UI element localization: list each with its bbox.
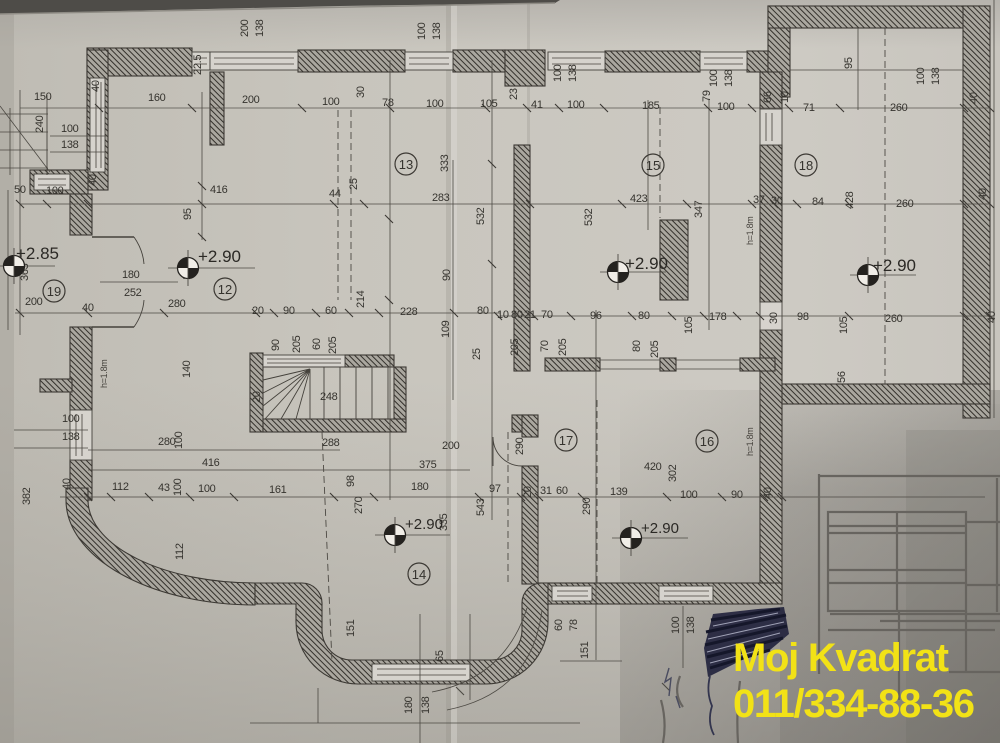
svg-text:100: 100 [172, 478, 184, 496]
svg-text:280: 280 [168, 298, 186, 310]
svg-text:98: 98 [345, 475, 357, 487]
svg-text:90: 90 [283, 305, 295, 317]
svg-text:100: 100 [552, 64, 564, 82]
svg-text:151: 151 [579, 641, 591, 659]
svg-text:+2.85: +2.85 [16, 244, 59, 263]
svg-text:283: 283 [432, 192, 450, 204]
svg-text:180: 180 [403, 696, 415, 714]
svg-text:10: 10 [497, 309, 509, 321]
svg-text:248: 248 [320, 391, 338, 403]
svg-text:h=1.8m: h=1.8m [745, 217, 755, 245]
svg-text:+2.90: +2.90 [405, 516, 443, 533]
svg-text:185: 185 [642, 100, 660, 112]
svg-text:100: 100 [416, 22, 428, 40]
svg-text:21: 21 [524, 309, 536, 321]
svg-text:100: 100 [426, 98, 444, 110]
svg-text:40: 40 [87, 174, 99, 186]
svg-text:40: 40 [82, 302, 94, 314]
svg-text:270: 270 [353, 496, 365, 514]
svg-text:160: 160 [148, 92, 166, 104]
svg-text:205: 205 [649, 340, 661, 358]
svg-text:100: 100 [198, 483, 216, 495]
svg-text:16: 16 [700, 434, 714, 449]
svg-text:109: 109 [440, 320, 452, 338]
svg-text:60: 60 [311, 338, 323, 350]
svg-text:60: 60 [553, 619, 565, 631]
svg-text:011/334-88-36: 011/334-88-36 [733, 682, 975, 726]
svg-text:260: 260 [885, 313, 903, 325]
svg-text:90: 90 [441, 269, 453, 281]
svg-text:Moj Kvadrat: Moj Kvadrat [733, 636, 949, 680]
svg-text:138: 138 [930, 67, 942, 85]
svg-text:138: 138 [685, 616, 697, 634]
svg-text:66: 66 [762, 91, 774, 103]
svg-text:205: 205 [509, 338, 521, 356]
svg-text:40: 40 [90, 80, 102, 92]
svg-text:37: 37 [753, 194, 765, 206]
svg-text:60: 60 [556, 485, 568, 497]
svg-text:100: 100 [915, 67, 927, 85]
svg-text:290: 290 [581, 497, 593, 515]
svg-text:200: 200 [25, 296, 43, 308]
svg-text:96: 96 [590, 310, 602, 322]
svg-text:h=1.8m: h=1.8m [99, 360, 109, 388]
svg-text:100: 100 [717, 101, 735, 113]
svg-text:205: 205 [557, 338, 569, 356]
svg-text:138: 138 [420, 696, 432, 714]
svg-text:90: 90 [731, 489, 743, 501]
svg-text:17: 17 [559, 433, 573, 448]
svg-text:200: 200 [242, 94, 260, 106]
svg-text:+2.90: +2.90 [873, 256, 916, 275]
svg-text:420: 420 [644, 461, 662, 473]
svg-text:+2.90: +2.90 [641, 520, 679, 537]
svg-text:100: 100 [61, 123, 79, 135]
svg-text:14: 14 [412, 567, 426, 582]
svg-text:416: 416 [202, 457, 220, 469]
svg-text:214: 214 [355, 290, 367, 308]
svg-text:71: 71 [803, 102, 815, 114]
svg-text:41: 41 [531, 99, 543, 111]
svg-text:60: 60 [325, 305, 337, 317]
svg-text:428: 428 [844, 191, 856, 209]
svg-text:252: 252 [124, 287, 142, 299]
svg-text:78: 78 [568, 619, 580, 631]
svg-text:138: 138 [62, 431, 80, 443]
svg-text:90: 90 [270, 339, 282, 351]
svg-text:288: 288 [322, 437, 340, 449]
svg-text:95: 95 [182, 208, 194, 220]
svg-text:205: 205 [291, 335, 303, 353]
svg-text:80: 80 [477, 305, 489, 317]
svg-text:65: 65 [434, 650, 446, 662]
svg-text:100: 100 [567, 99, 585, 111]
svg-text:100: 100 [680, 489, 698, 501]
svg-text:95: 95 [843, 57, 855, 69]
svg-text:180: 180 [411, 481, 429, 493]
svg-text:200: 200 [239, 19, 251, 37]
svg-text:44: 44 [329, 188, 341, 200]
svg-text:240: 240 [34, 115, 46, 133]
svg-text:260: 260 [890, 102, 908, 114]
svg-text:20: 20 [252, 305, 264, 317]
svg-text:100: 100 [173, 431, 185, 449]
svg-text:180: 180 [122, 269, 140, 281]
svg-text:30: 30 [355, 86, 367, 98]
svg-text:10: 10 [779, 91, 791, 103]
svg-text:302: 302 [667, 464, 679, 482]
svg-text:84: 84 [812, 196, 824, 208]
svg-text:h=1.8m: h=1.8m [745, 428, 755, 456]
svg-text:100: 100 [322, 96, 340, 108]
svg-text:138: 138 [723, 69, 735, 87]
svg-text:151: 151 [345, 619, 357, 637]
svg-text:23: 23 [508, 88, 520, 100]
svg-text:416: 416 [210, 184, 228, 196]
svg-text:80: 80 [511, 309, 523, 321]
svg-text:532: 532 [583, 208, 595, 226]
svg-text:100: 100 [46, 185, 64, 197]
svg-text:260: 260 [896, 198, 914, 210]
svg-text:532: 532 [475, 207, 487, 225]
svg-text:19: 19 [47, 284, 61, 299]
svg-text:139: 139 [610, 486, 628, 498]
svg-text:138: 138 [567, 64, 579, 82]
svg-text:25: 25 [348, 178, 360, 190]
svg-text:100: 100 [670, 616, 682, 634]
svg-text:70: 70 [541, 309, 553, 321]
svg-text:161: 161 [269, 484, 287, 496]
svg-text:40: 40 [968, 92, 980, 104]
svg-text:138: 138 [61, 139, 79, 151]
svg-text:290: 290 [514, 437, 526, 455]
svg-text:40: 40 [61, 478, 73, 490]
svg-text:22.5: 22.5 [192, 55, 204, 75]
svg-text:56: 56 [836, 371, 848, 383]
svg-text:100: 100 [708, 69, 720, 87]
svg-text:333: 333 [439, 154, 451, 172]
svg-text:105: 105 [683, 316, 695, 334]
svg-text:40: 40 [977, 188, 989, 200]
svg-text:105: 105 [480, 98, 498, 110]
svg-text:43: 43 [158, 482, 170, 494]
svg-text:70: 70 [539, 340, 551, 352]
svg-text:40: 40 [986, 311, 998, 323]
svg-text:150: 150 [34, 91, 52, 103]
svg-text:80: 80 [638, 310, 650, 322]
svg-text:+2.90: +2.90 [198, 247, 241, 266]
svg-text:112: 112 [174, 543, 186, 560]
svg-text:228: 228 [400, 306, 418, 318]
svg-text:112: 112 [112, 481, 129, 493]
svg-text:18: 18 [799, 158, 813, 173]
svg-text:423: 423 [630, 193, 648, 205]
svg-text:25: 25 [471, 348, 483, 360]
svg-text:382: 382 [21, 487, 33, 505]
svg-text:40: 40 [762, 487, 774, 499]
svg-text:100: 100 [62, 413, 80, 425]
svg-text:30: 30 [768, 312, 780, 324]
svg-text:13: 13 [399, 157, 413, 172]
svg-text:205: 205 [327, 336, 339, 354]
svg-text:20: 20 [251, 391, 263, 403]
svg-text:+2.90: +2.90 [625, 254, 668, 273]
svg-text:50: 50 [14, 184, 26, 196]
svg-text:140: 140 [181, 360, 193, 378]
svg-text:178: 178 [709, 311, 727, 323]
svg-text:79: 79 [701, 90, 713, 102]
svg-text:30: 30 [771, 195, 783, 207]
svg-text:375: 375 [419, 459, 437, 471]
svg-text:200: 200 [442, 440, 460, 452]
svg-text:12: 12 [218, 282, 232, 297]
svg-text:31: 31 [540, 485, 552, 497]
svg-text:347: 347 [693, 200, 705, 218]
svg-text:20: 20 [522, 486, 534, 498]
svg-text:138: 138 [431, 22, 443, 40]
svg-text:105: 105 [838, 316, 850, 334]
svg-text:97: 97 [489, 483, 501, 495]
svg-text:80: 80 [631, 340, 643, 352]
svg-text:15: 15 [646, 158, 660, 173]
svg-text:78: 78 [382, 97, 394, 109]
svg-text:138: 138 [254, 19, 266, 37]
svg-text:98: 98 [797, 311, 809, 323]
svg-text:543: 543 [475, 498, 487, 516]
